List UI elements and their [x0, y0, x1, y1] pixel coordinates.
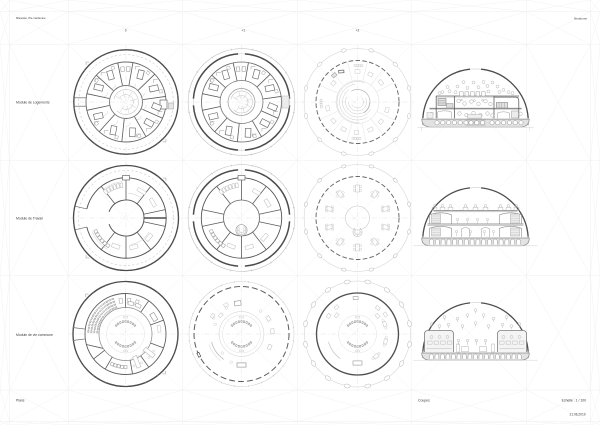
svg-text:Coupes: Coupes	[418, 399, 430, 403]
svg-text:Echelle : 1 / 100: Echelle : 1 / 100	[562, 399, 586, 403]
svg-text:21.06.2019: 21.06.2019	[570, 413, 586, 417]
svg-text:Plans: Plans	[16, 399, 25, 403]
svg-text:Module de vie commune: Module de vie commune	[16, 333, 53, 337]
svg-text:Module de Logements: Module de Logements	[16, 101, 50, 105]
svg-text:+2: +2	[356, 29, 360, 33]
svg-text:Manosta, l'île martienne: Manosta, l'île martienne	[16, 16, 46, 20]
svg-text:0: 0	[125, 29, 127, 33]
svg-text:+1: +1	[241, 29, 245, 33]
svg-text:Neodome: Neodome	[574, 17, 587, 21]
svg-text:Module de Travail: Module de Travail	[16, 217, 43, 221]
